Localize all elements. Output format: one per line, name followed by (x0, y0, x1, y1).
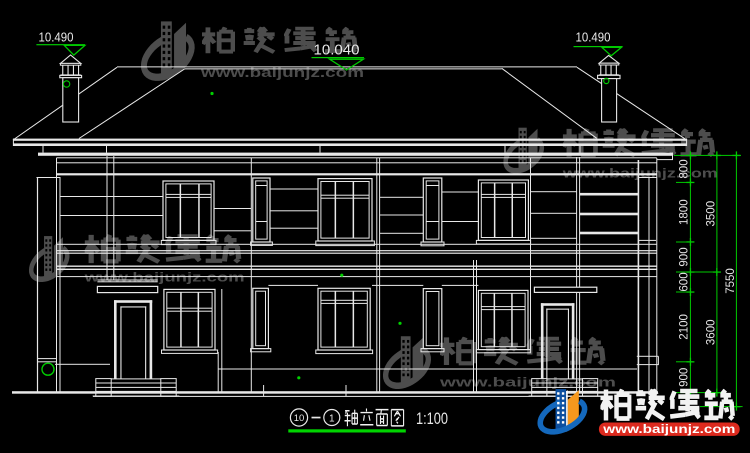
svg-text:1800: 1800 (678, 199, 690, 225)
svg-text:900: 900 (678, 247, 690, 266)
svg-text:3600: 3600 (705, 320, 717, 346)
svg-text:900: 900 (678, 368, 690, 387)
svg-text:www.baijunjz.com: www.baijunjz.com (602, 424, 735, 436)
svg-text:7550: 7550 (725, 268, 737, 294)
svg-text:2100: 2100 (678, 314, 690, 340)
svg-text:1: 1 (329, 414, 335, 425)
svg-text:10.490: 10.490 (576, 31, 611, 45)
svg-text:600: 600 (678, 272, 690, 291)
svg-text:10.040: 10.040 (314, 43, 360, 59)
svg-text:3500: 3500 (705, 201, 717, 227)
svg-text:1:100: 1:100 (416, 410, 448, 428)
svg-text:10.490: 10.490 (39, 31, 74, 45)
svg-text:800: 800 (678, 159, 690, 178)
svg-text:10: 10 (294, 413, 305, 424)
